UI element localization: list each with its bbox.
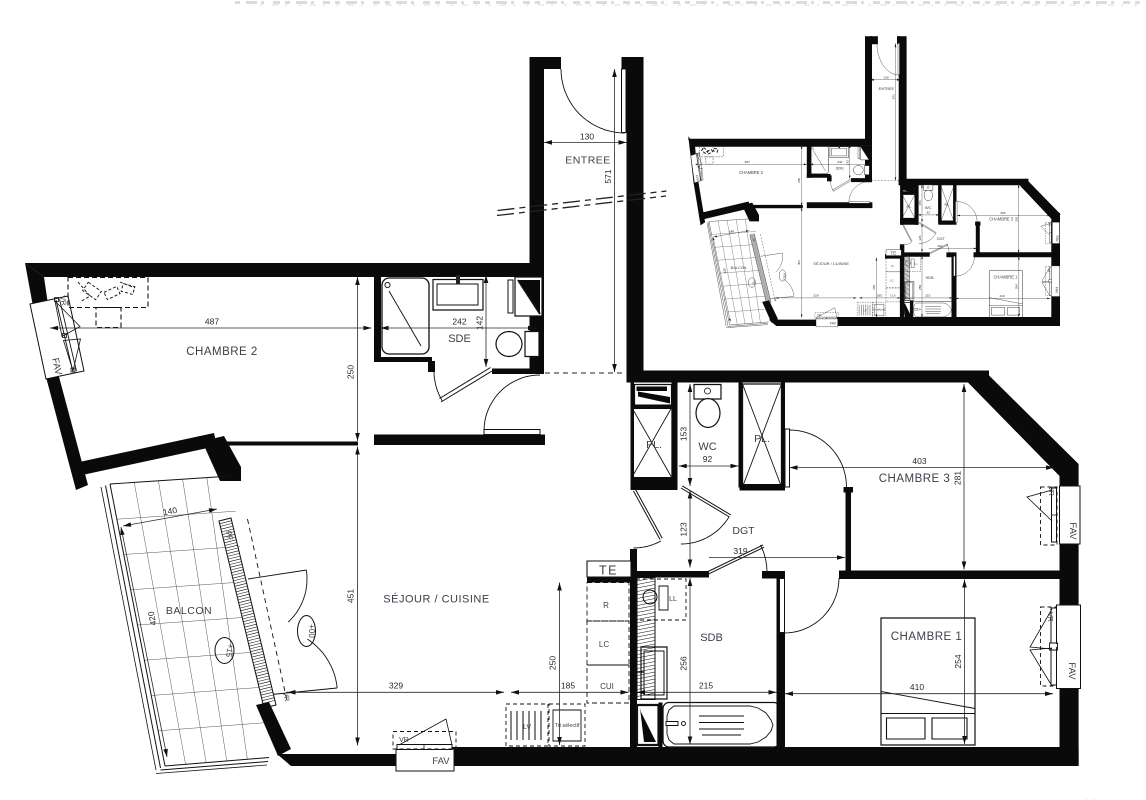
svg-text:254: 254 [953,654,963,668]
svg-text:WC: WC [698,441,716,453]
svg-text:487: 487 [745,160,750,164]
svg-text:SDB: SDB [700,632,723,644]
svg-text:SÉJOUR / CUISINE: SÉJOUR / CUISINE [813,261,849,266]
svg-text:WC: WC [925,205,932,210]
svg-text:DGT: DGT [937,237,946,241]
svg-text:329: 329 [389,681,403,691]
svg-text:403: 403 [912,456,926,466]
svg-text:CUI: CUI [890,294,895,298]
svg-text:SDE: SDE [448,333,471,345]
svg-text:CHAMBRE 3: CHAMBRE 3 [989,217,1014,222]
svg-text:571: 571 [891,94,895,99]
svg-text:250: 250 [797,178,801,183]
svg-text:185: 185 [561,681,575,691]
svg-text:319: 319 [937,244,942,248]
svg-text:ENTREE: ENTREE [565,155,611,167]
svg-text:153: 153 [918,200,922,205]
svg-text:R: R [892,264,894,268]
svg-text:410: 410 [910,682,924,692]
svg-text:SDB: SDB [925,275,934,280]
svg-text:130: 130 [883,75,888,79]
svg-text:215: 215 [925,294,930,298]
svg-text:SÉJOUR / CUISINE: SÉJOUR / CUISINE [383,593,489,606]
svg-text:LC: LC [599,640,609,649]
svg-text:R: R [603,601,609,610]
svg-text:319: 319 [733,546,747,556]
svg-text:FAV: FAV [1066,662,1077,680]
svg-text:Tri sélectif: Tri sélectif [873,308,885,312]
svg-text:256: 256 [679,656,689,670]
svg-text:VR: VR [1047,268,1051,272]
svg-text:TE: TE [891,251,897,256]
svg-text:+00: +00 [783,273,787,278]
svg-text:CHAMBRE 2: CHAMBRE 2 [186,346,258,358]
svg-text:PL.: PL. [754,433,770,445]
svg-text:VR: VR [399,737,409,744]
svg-text:BALCON: BALCON [731,266,747,270]
svg-text:SDE: SDE [836,165,845,170]
svg-text:123: 123 [918,235,922,240]
svg-text:BALCON: BALCON [166,605,212,617]
svg-text:VR: VR [1048,222,1052,226]
svg-text:LL: LL [915,261,918,265]
svg-text:VR: VR [1047,486,1054,496]
svg-text:LV: LV [523,724,531,731]
svg-text:FAV: FAV [830,321,837,325]
svg-text:DGT: DGT [732,525,755,537]
svg-text:VR: VR [817,313,821,317]
svg-text:185: 185 [877,294,882,298]
svg-text:PL.: PL. [906,205,912,209]
svg-text:242: 242 [452,317,466,327]
svg-text:142: 142 [845,160,849,165]
svg-text:LL: LL [669,596,677,603]
svg-text:CUI: CUI [600,682,614,691]
svg-text:215: 215 [699,681,713,691]
svg-text:256: 256 [918,285,922,290]
svg-text:281: 281 [953,471,963,485]
svg-text:ENTREE: ENTREE [879,87,895,91]
svg-text:Tri sélectif: Tri sélectif [555,723,580,729]
svg-text:451: 451 [346,589,356,603]
svg-text:153: 153 [679,427,689,441]
svg-text:250: 250 [548,656,558,670]
svg-text:+00: +00 [307,624,316,638]
svg-text:PL.: PL. [646,439,662,451]
svg-text:142: 142 [475,316,485,330]
svg-text:CHAMBRE 2: CHAMBRE 2 [739,170,764,175]
svg-text:451: 451 [797,260,801,265]
svg-text:VR: VR [1046,612,1053,622]
svg-text:254: 254 [1015,284,1019,289]
svg-text:CHAMBRE 3: CHAMBRE 3 [879,473,951,485]
svg-text:571: 571 [603,169,613,183]
svg-text:FAV: FAV [432,756,450,767]
svg-text:242: 242 [837,160,842,164]
svg-text:403: 403 [1000,211,1005,215]
svg-text:LV: LV [864,308,867,312]
svg-text:CHAMBRE 1: CHAMBRE 1 [993,275,1018,280]
svg-text:281: 281 [1014,216,1018,221]
svg-text:FAV: FAV [1055,236,1059,243]
svg-text:TE: TE [599,564,618,578]
svg-text:FAV: FAV [1067,522,1078,540]
svg-text:92: 92 [703,454,713,464]
svg-text:CHAMBRE 1: CHAMBRE 1 [891,631,963,643]
svg-text:410: 410 [999,294,1004,298]
svg-text:PL.: PL. [945,203,951,207]
svg-text:250: 250 [346,365,356,379]
svg-text:250: 250 [872,284,876,289]
svg-text:487: 487 [205,317,219,327]
svg-text:329: 329 [813,294,818,298]
svg-text:FAV: FAV [1055,287,1059,294]
svg-text:LC: LC [890,278,894,282]
svg-text:123: 123 [679,522,689,536]
svg-text:130: 130 [580,132,594,142]
svg-text:92: 92 [926,210,930,214]
